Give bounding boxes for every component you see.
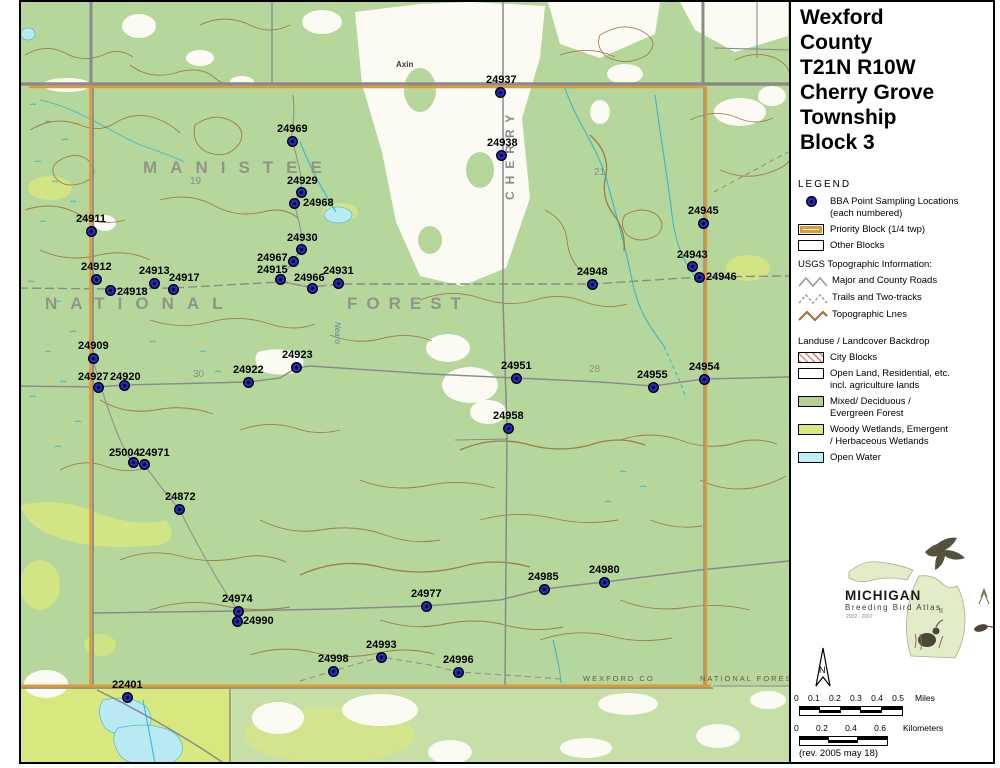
bba-point-label: 22401: [112, 680, 143, 691]
bba-point-24922: [243, 377, 254, 388]
legend-item-roads: Major and County Roads: [798, 275, 994, 288]
landuse-heading: Landuse / Landcover Backdrop: [798, 336, 994, 348]
bba-point-label: 24937: [486, 75, 517, 86]
bba-point-24943: [687, 261, 698, 272]
miles-scale-ticks: 00.10.20.30.40.5: [794, 693, 904, 703]
legend-label: incl. agriculture lands: [830, 380, 994, 392]
bba-point-label: 24946: [706, 272, 737, 283]
bba-point-label: 24993: [366, 640, 397, 651]
legend-label: Priority Block (1/4 twp): [830, 224, 925, 236]
bba-point-label: 24938: [487, 138, 518, 149]
bba-point-label: 24911: [76, 214, 106, 225]
bba-point-24954: [699, 374, 710, 385]
other-blocks-swatch: [798, 240, 824, 251]
legend-item-open-land: Open Land, Residential, etc.: [798, 368, 994, 380]
bba-point-label: 24969: [277, 124, 308, 135]
bba-point-24913: [149, 278, 160, 289]
bba-point-label: 24922: [233, 365, 264, 376]
title-line: T21N R10W: [800, 56, 916, 80]
svg-text:N: N: [819, 665, 826, 675]
legend-item-forest: Mixed/ Deciduous /: [798, 396, 994, 408]
bba-point-24929: [296, 187, 307, 198]
bba-point-24937: [495, 87, 506, 98]
bba-point-label: 24971: [139, 448, 170, 459]
road-line-icon: [798, 275, 828, 288]
bba-point-24967: [288, 256, 299, 267]
scale-tick: 0.3: [850, 693, 862, 703]
scale-tick: 0.2: [829, 693, 841, 703]
title-line: Township: [800, 106, 896, 130]
topo-line-icon: [798, 309, 828, 322]
bba-point-label: 24927: [78, 372, 109, 383]
km-scale-ticks: 00.20.40.6: [794, 723, 886, 733]
miles-scale-bar: [799, 706, 903, 716]
bba-point-label: 24929: [287, 176, 318, 187]
bba-point-label: 24954: [689, 362, 720, 373]
legend-label: (each numbered): [830, 208, 902, 219]
bba-point-icon: [806, 196, 817, 207]
legend-label: Mixed/ Deciduous /: [830, 396, 911, 408]
bba-point-label: 24930: [287, 233, 318, 244]
legend-item-trails: Trails and Two-tracks: [798, 292, 994, 305]
side-panel: Wexford County T21N R10W Cherry Grove To…: [789, 2, 995, 762]
bba-point-label: 24923: [282, 350, 313, 361]
bba-point-24912: [91, 274, 102, 285]
scale-tick: 0.5: [892, 693, 904, 703]
bba-point-label: 24912: [81, 262, 112, 273]
bba-point-24917: [168, 284, 179, 295]
bba-point-label: 24945: [688, 206, 719, 217]
scale-tick: 0: [794, 723, 799, 733]
bba-point-label: 24909: [78, 341, 109, 352]
title-line: County: [800, 31, 872, 55]
bba-point-label: 25004: [109, 448, 140, 459]
bba-point-label: 24872: [165, 492, 196, 503]
legend-label: Other Blocks: [830, 240, 884, 252]
bba-point-24998: [328, 666, 339, 677]
bba-point-24945: [698, 218, 709, 229]
scale-tick: 0: [794, 693, 799, 703]
bba-point-24968: [289, 198, 300, 209]
north-arrow-icon: N: [809, 646, 837, 690]
bba-point-label: 24985: [528, 572, 559, 583]
legend-item-other-blocks: Other Blocks: [798, 240, 994, 252]
bba-point-label: 24977: [411, 589, 442, 600]
bba-point-24985: [539, 584, 550, 595]
bba-point-24980: [599, 577, 610, 588]
bba-point-label: 24996: [443, 655, 474, 666]
bba-point-24923: [291, 362, 302, 373]
bba-point-24958: [503, 423, 514, 434]
pine-icon: [979, 589, 989, 604]
legend-heading: LEGEND: [798, 179, 994, 191]
logo-name: MICHIGAN: [845, 588, 921, 603]
km-unit: Kilometers: [903, 723, 943, 733]
bba-point-label: 24917: [169, 273, 200, 284]
bba-point-24930: [296, 244, 307, 255]
bba-point-24996: [453, 667, 464, 678]
bba-point-24948: [587, 279, 598, 290]
legend-item-open-water: Open Water: [798, 452, 994, 464]
bba-point-24974: [233, 606, 244, 617]
legend-item-wetland: Woody Wetlands, Emergent: [798, 424, 994, 436]
bba-point-label: 24915: [257, 265, 288, 276]
title-line: Block 3: [800, 131, 875, 155]
bba-point-24971: [139, 459, 150, 470]
title-line: Cherry Grove: [800, 81, 934, 105]
legend-label: Major and County Roads: [832, 275, 937, 287]
legend-label: Evergreen Forest: [830, 408, 994, 420]
bba-point-label: 24990: [243, 616, 274, 627]
bba-point-label: 24918: [117, 287, 148, 298]
usgs-heading: USGS Topographic Information:: [798, 259, 994, 271]
open-land-swatch: [798, 368, 824, 379]
wetland-swatch: [798, 424, 824, 435]
bba-point-label: 24931: [323, 266, 354, 277]
legend-item-city-blocks: City Blocks: [798, 352, 994, 364]
bba-point-24969: [287, 136, 298, 147]
legend-item-bba: BBA Point Sampling Locations (each numbe…: [798, 196, 994, 220]
bba-point-label: 24958: [493, 411, 524, 422]
bba-point-24918: [105, 285, 116, 296]
legend-label: Woody Wetlands, Emergent: [830, 424, 948, 436]
legend-label: Open Land, Residential, etc.: [830, 368, 950, 380]
bba-point-22401: [122, 692, 133, 703]
bba-point-label: 24968: [303, 198, 334, 209]
bba-point-24993: [376, 652, 387, 663]
logo-years: 2002 - 2007: [846, 614, 873, 620]
bba-point-label: 24913: [139, 266, 170, 277]
legend-label: Open Water: [830, 452, 881, 464]
legend-label: Topographic Lnes: [832, 309, 907, 321]
legend-label: Trails and Two-tracks: [832, 292, 922, 304]
legend-item-topo: Topographic Lnes: [798, 309, 994, 322]
open-water-swatch: [798, 452, 824, 463]
bba-point-label: 24966: [294, 273, 325, 284]
scale-tick: 0.2: [816, 723, 828, 733]
bba-point-label: 24980: [589, 565, 620, 576]
logo-numeral: II: [939, 608, 943, 615]
bba-point-label: 24967: [257, 253, 288, 264]
bba-point-label: 24948: [577, 267, 608, 278]
bba-point-label: 24974: [222, 594, 253, 605]
legend-label: City Blocks: [830, 352, 877, 364]
bba-point-24966: [307, 283, 318, 294]
forest-swatch: [798, 396, 824, 407]
bba-point-label: 24943: [677, 250, 708, 261]
legend-label: BBA Point Sampling Locations: [830, 196, 958, 207]
legend: LEGEND BBA Point Sampling Locations (eac…: [798, 179, 994, 464]
title-line: Wexford: [800, 6, 884, 30]
scale-tick: 0.4: [845, 723, 857, 733]
bba-point-24911: [86, 226, 97, 237]
bba-point-24990: [232, 616, 243, 627]
scale-tick: 0.4: [871, 693, 883, 703]
bba-point-24955: [648, 382, 659, 393]
songbird-icon: [973, 621, 993, 633]
map-sheet: MANISTEENATIONALFORESTAxinWEXFORD CONATI…: [0, 0, 1000, 768]
bba-point-label: 24955: [637, 370, 668, 381]
bba-point-24977: [421, 601, 432, 612]
priority-block-swatch: [798, 224, 824, 235]
km-scale-bar: [799, 736, 888, 746]
bba-point-24927: [93, 382, 104, 393]
mbba-logo: MICHIGAN Breeding Bird Atlas 2002 - 2007…: [841, 536, 993, 668]
hawk-icon: [925, 538, 965, 570]
bba-point-24931: [333, 278, 344, 289]
bba-point-label: 24998: [318, 654, 349, 665]
legend-item-priority-block: Priority Block (1/4 twp): [798, 224, 994, 236]
revision-note: (rev. 2005 may 18): [799, 748, 878, 759]
legend-label: / Herbaceous Wetlands: [830, 436, 994, 448]
bba-point-24872: [174, 504, 185, 515]
trail-line-icon: [798, 292, 828, 305]
scale-tick: 0.1: [808, 693, 820, 703]
logo-subtitle: Breeding Bird Atlas: [845, 603, 942, 612]
bba-point-label: 24920: [110, 372, 141, 383]
bba-point-24938: [496, 150, 507, 161]
bba-point-24951: [511, 373, 522, 384]
scale-tick: 0.6: [874, 723, 886, 733]
bba-point-label: 24951: [501, 361, 532, 372]
bba-point-24909: [88, 353, 99, 364]
miles-unit: Miles: [915, 693, 935, 703]
city-blocks-swatch: [798, 352, 824, 363]
bba-point-24946: [694, 272, 705, 283]
